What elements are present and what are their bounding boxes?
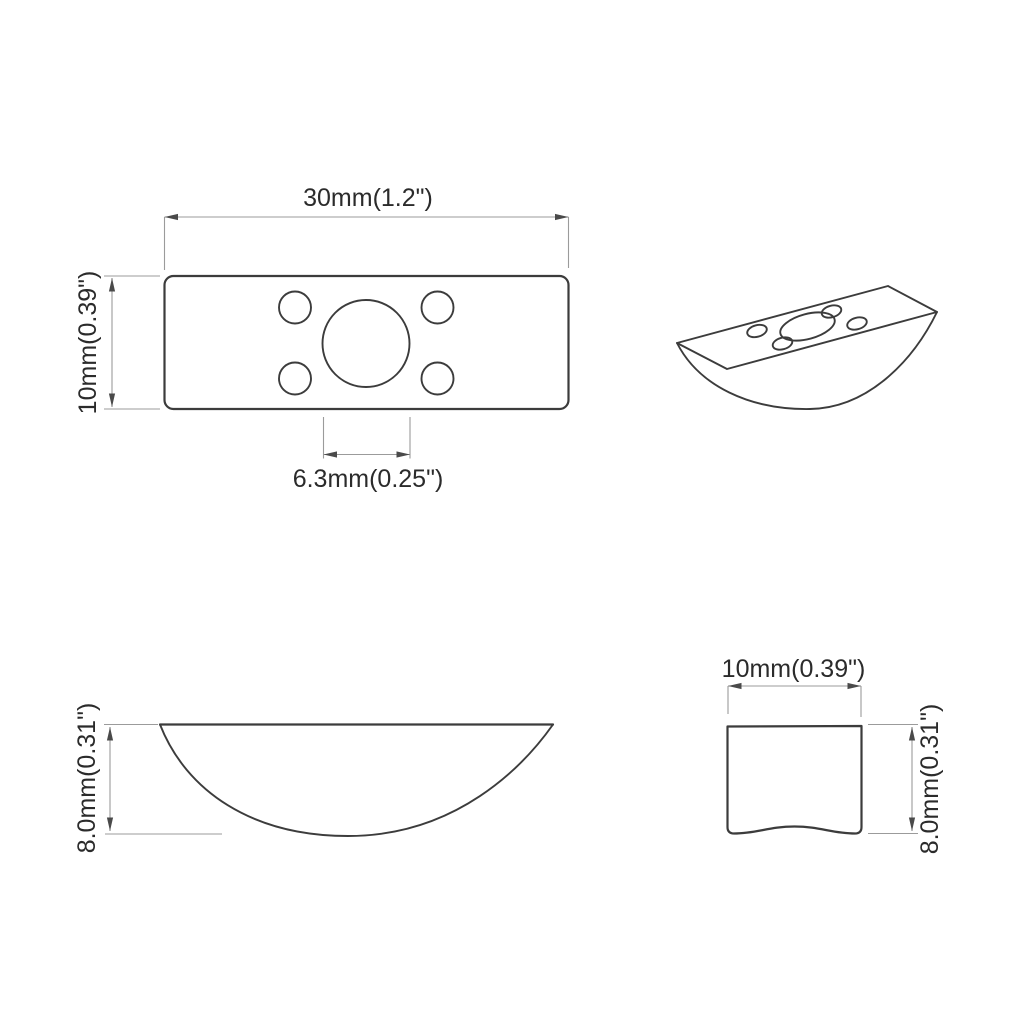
top-view-hole-extension-lines	[324, 417, 411, 459]
top-view-plate-outline	[165, 276, 569, 409]
top-view-screw-hole-bottom-left	[279, 363, 311, 395]
top-view-screw-hole-bottom-right	[422, 363, 454, 395]
top-view-screw-hole-top-right	[422, 292, 454, 324]
isometric-screw-hole-bottom	[771, 335, 793, 351]
technical-drawing: 30mm(1.2") 10mm(0.39") 6.3mm(0.25") 8.0m…	[0, 0, 1024, 1024]
side-view-height-label: 8.0mm(0.31")	[73, 703, 101, 854]
top-view-width-extension-lines	[165, 217, 569, 270]
side-view-extension-lines	[104, 725, 222, 835]
end-view-width-label: 10mm(0.39")	[722, 655, 866, 683]
top-view-screw-hole-top-left	[279, 292, 311, 324]
isometric-screw-hole-top	[820, 303, 842, 319]
top-view-center-hole	[323, 300, 410, 387]
isometric-plate-face	[677, 286, 937, 369]
top-view-hole-label: 6.3mm(0.25")	[293, 465, 444, 493]
isometric-curved-body	[677, 312, 937, 409]
end-view: 10mm(0.39") 8.0mm(0.31")	[722, 655, 944, 854]
top-view-height-label: 10mm(0.39")	[74, 271, 102, 415]
end-view-height-extension-lines	[868, 725, 918, 834]
end-view-height-label: 8.0mm(0.31")	[916, 704, 944, 855]
drawing-canvas: 30mm(1.2") 10mm(0.39") 6.3mm(0.25") 8.0m…	[0, 0, 1024, 1024]
side-view-curved-edge	[160, 725, 553, 837]
top-view-width-label: 30mm(1.2")	[303, 184, 433, 212]
top-view: 30mm(1.2") 10mm(0.39") 6.3mm(0.25")	[74, 184, 569, 493]
end-view-width-extension-lines	[728, 686, 861, 717]
isometric-screw-hole-left	[746, 323, 768, 339]
isometric-view	[677, 286, 937, 409]
end-view-outline	[728, 726, 862, 834]
isometric-screw-hole-right	[846, 315, 868, 331]
side-view: 8.0mm(0.31")	[73, 703, 553, 854]
